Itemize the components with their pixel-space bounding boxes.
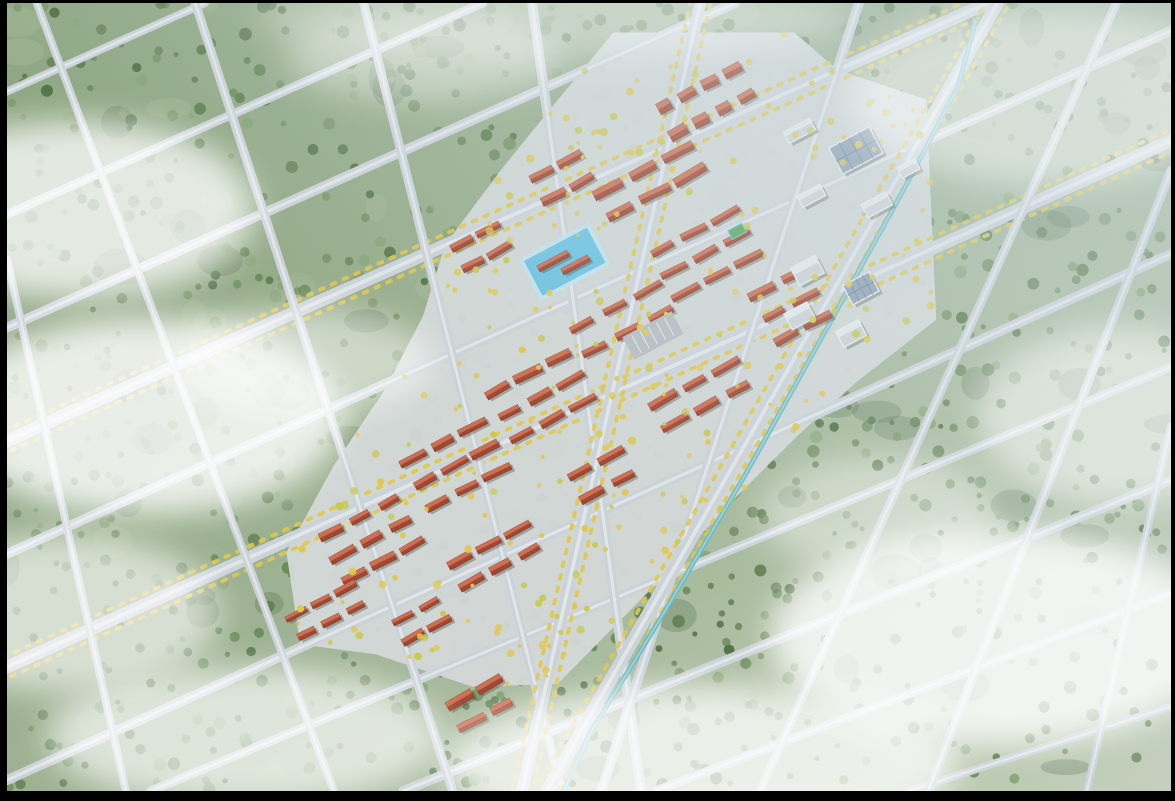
rendered-aerial-view <box>7 3 1171 791</box>
photo-frame <box>0 0 1175 801</box>
mist-cloud <box>175 308 433 416</box>
mist-cloud <box>760 456 998 574</box>
aerial-masterplan-rendering <box>7 3 1171 791</box>
